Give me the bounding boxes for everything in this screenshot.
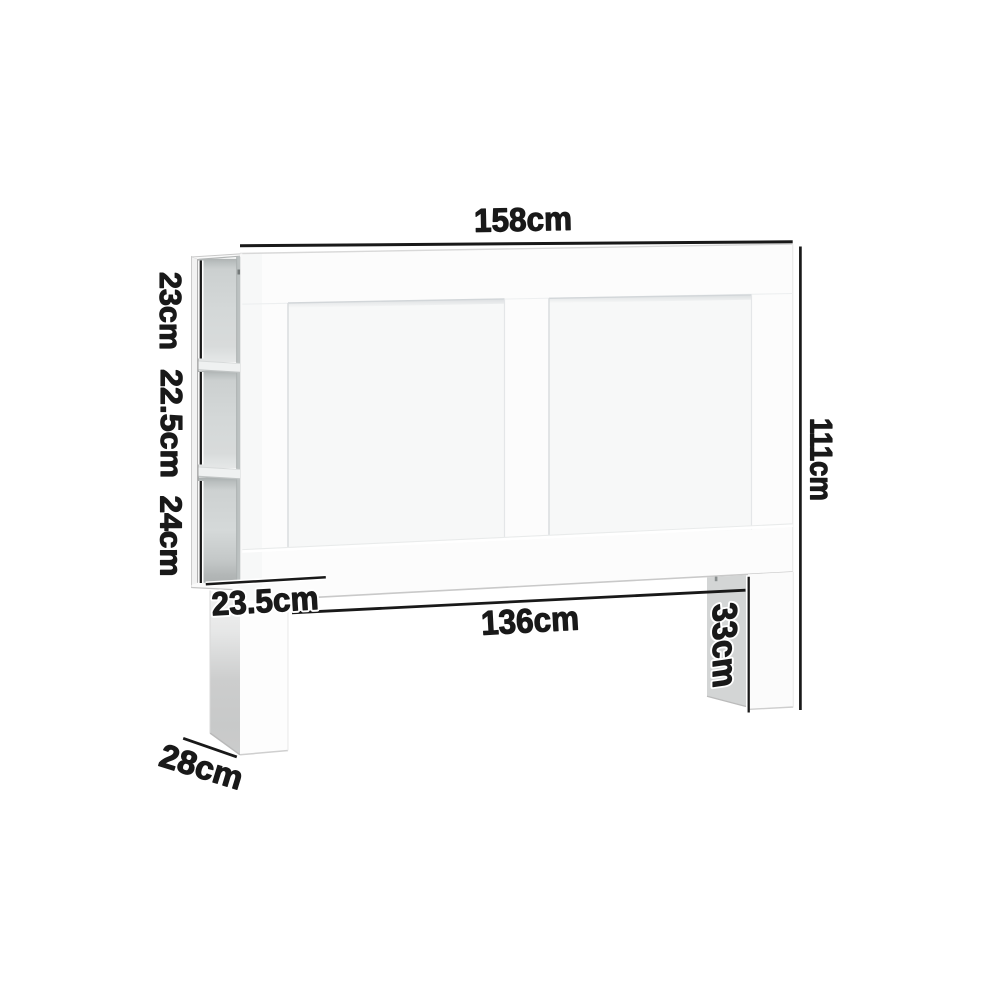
svg-text:136cm: 136cm bbox=[480, 600, 580, 643]
svg-text:23cm: 23cm bbox=[153, 272, 188, 350]
svg-text:24cm: 24cm bbox=[154, 496, 189, 577]
svg-text:158cm: 158cm bbox=[474, 200, 573, 239]
svg-text:111cm: 111cm bbox=[804, 418, 840, 501]
svg-text:33cm: 33cm bbox=[705, 600, 743, 689]
svg-text:23.5cm: 23.5cm bbox=[210, 579, 319, 622]
svg-text:22.5cm: 22.5cm bbox=[154, 369, 189, 478]
